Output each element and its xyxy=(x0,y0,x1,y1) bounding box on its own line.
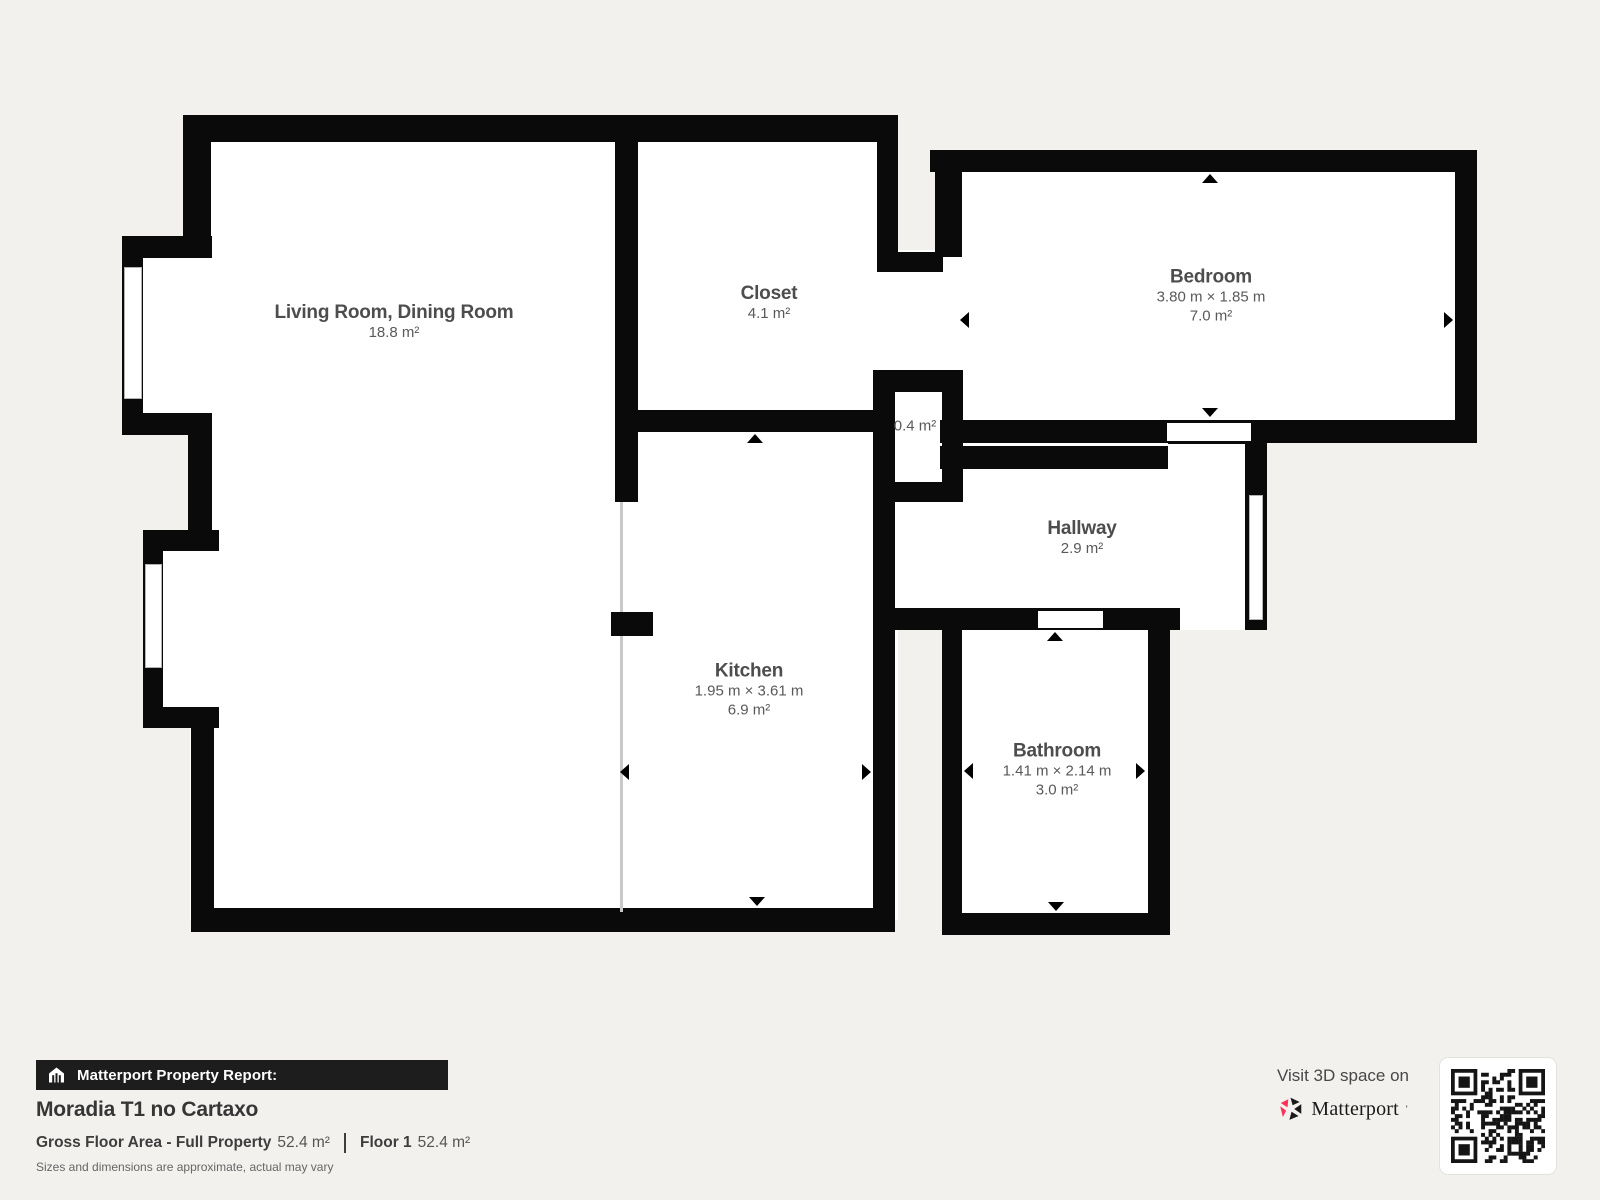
small-space-area: 0.4 m² xyxy=(894,417,937,436)
hallway-area: 2.9 m² xyxy=(1047,539,1116,558)
bedroom-dim-arrow-up xyxy=(1202,174,1218,183)
wall-bottom xyxy=(191,908,895,932)
living-room-label: Living Room, Dining Room 18.8 m² xyxy=(274,302,513,342)
hallway-name: Hallway xyxy=(1047,518,1116,539)
qr-code-card xyxy=(1440,1058,1556,1174)
closet-label: Closet 4.1 m² xyxy=(741,283,798,323)
hallway-label: Hallway 2.9 m² xyxy=(1047,518,1116,558)
wall-hallway-bottom xyxy=(873,608,1180,630)
trademark-mark: ' xyxy=(1406,1104,1408,1114)
wall-kitchen-right xyxy=(873,370,895,932)
kitchen-dim-arrow-up xyxy=(747,434,763,443)
matterport-wordmark: Matterport xyxy=(1311,1098,1399,1121)
kitchen-label: Kitchen 1.95 m × 3.61 m 6.9 m² xyxy=(695,661,804,720)
matterport-brand-row: Matterport' xyxy=(1253,1096,1433,1122)
wall-closet-bottom xyxy=(615,410,875,432)
window-bay2 xyxy=(145,564,162,668)
kitchen-dim-arrow-down xyxy=(749,897,765,906)
report-bar: Matterport Property Report: xyxy=(36,1060,448,1090)
closet-area: 4.1 m² xyxy=(741,304,798,323)
floor1-label: Floor 1 xyxy=(360,1134,412,1152)
wall-bedroom-left xyxy=(935,150,962,257)
bedroom-dim-arrow-down xyxy=(1202,408,1218,417)
bathroom-dim-arrow-down xyxy=(1048,902,1064,911)
wall-left-mid xyxy=(188,430,212,535)
living-room-bay-upper xyxy=(140,255,220,415)
floor1-value: 52.4 m² xyxy=(418,1134,471,1152)
window-hallway-right xyxy=(1249,495,1263,620)
report-bar-label: Matterport Property Report: xyxy=(77,1067,277,1084)
bathroom-area: 3.0 m² xyxy=(1003,781,1112,800)
bathroom-label: Bathroom 1.41 m × 2.14 m 3.0 m² xyxy=(1003,741,1112,800)
floor-plan: Living Room, Dining Room 18.8 m² Closet … xyxy=(0,0,1600,1000)
bathroom-dim-arrow-up xyxy=(1047,632,1063,641)
wall-left-upper xyxy=(183,115,211,240)
wall-stub-kitchen xyxy=(611,612,653,636)
bedroom-dim-arrow-left xyxy=(960,312,969,328)
kitchen-area: 6.9 m² xyxy=(695,701,804,720)
kitchen-name: Kitchen xyxy=(695,661,804,682)
wall-left-lower xyxy=(191,724,214,932)
wall-closet-right xyxy=(877,140,898,257)
gross-floor-area-label: Gross Floor Area - Full Property xyxy=(36,1134,271,1152)
wall-stub-right-of-closet xyxy=(877,252,943,272)
bathroom-name: Bathroom xyxy=(1003,741,1112,762)
door-bathroom xyxy=(1038,611,1103,628)
window-bay1 xyxy=(124,267,142,399)
wall-hallway-top xyxy=(940,446,1168,469)
area-specs: Gross Floor Area - Full Property 52.4 m²… xyxy=(36,1133,470,1153)
bedroom-dim-arrow-right xyxy=(1444,312,1453,328)
door-bedroom xyxy=(1167,423,1251,441)
wall-livingroom-closet-divider xyxy=(615,140,638,502)
wall-bedroom-right xyxy=(1455,150,1477,443)
living-room-name: Living Room, Dining Room xyxy=(274,302,513,323)
bedroom-label: Bedroom 3.80 m × 1.85 m 7.0 m² xyxy=(1157,267,1266,326)
kitchen-dim-arrow-right xyxy=(862,764,871,780)
report-footer: Matterport Property Report: Moradia T1 n… xyxy=(0,1000,1600,1200)
bedroom-name: Bedroom xyxy=(1157,267,1266,288)
spec-divider xyxy=(344,1133,346,1153)
gross-floor-area-value: 52.4 m² xyxy=(277,1134,330,1152)
bathroom-dim-arrow-right xyxy=(1136,763,1145,779)
qr-code xyxy=(1451,1069,1545,1163)
kitchen-dim-arrow-left xyxy=(620,764,629,780)
closet-name: Closet xyxy=(741,283,798,304)
wall-bathroom-bottom xyxy=(942,913,1170,935)
matterport-logo-icon xyxy=(1278,1096,1304,1122)
bedroom-dims: 3.80 m × 1.85 m xyxy=(1157,288,1266,307)
wall-bathroom-right xyxy=(1148,608,1170,935)
bathroom-dims: 1.41 m × 2.14 m xyxy=(1003,762,1112,781)
visit-3d-cta: Visit 3D space on Matterport' xyxy=(1253,1066,1433,1122)
bedroom-area: 7.0 m² xyxy=(1157,307,1266,326)
disclaimer-text: Sizes and dimensions are approximate, ac… xyxy=(36,1160,333,1174)
wall-bedroom-top xyxy=(930,150,1477,172)
bathroom-dim-arrow-left xyxy=(964,763,973,779)
wall-top xyxy=(183,115,898,142)
room-living-room xyxy=(190,130,898,920)
wall-small-space-bottom xyxy=(873,482,963,502)
property-name: Moradia T1 no Cartaxo xyxy=(36,1098,258,1122)
visit-3d-text: Visit 3D space on xyxy=(1253,1066,1433,1086)
kitchen-dims: 1.95 m × 3.61 m xyxy=(695,682,804,701)
small-space-label: 0.4 m² xyxy=(894,417,937,436)
wall-bathroom-left xyxy=(942,630,962,935)
living-room-area: 18.8 m² xyxy=(274,323,513,342)
house-chart-icon xyxy=(48,1067,65,1083)
living-room-bay-lower xyxy=(160,548,230,708)
open-boundary-livingroom-kitchen xyxy=(620,502,623,912)
